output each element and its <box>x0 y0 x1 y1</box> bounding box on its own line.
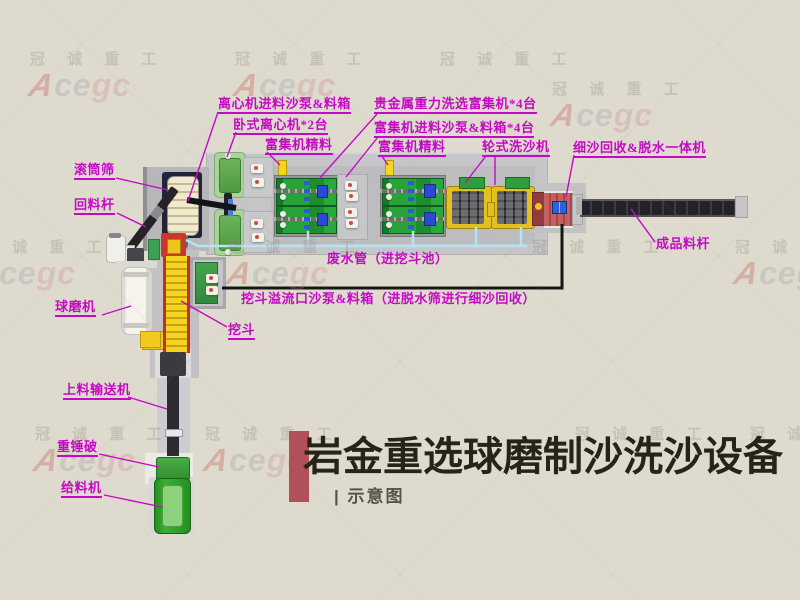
watermark-group: 冠 诚 重 工 Acegc <box>735 240 800 289</box>
bank2-nozzles-bottom <box>408 209 414 231</box>
drum-screen-machine <box>167 176 199 236</box>
watermark-group: 冠 诚 重 工 Acegc <box>235 52 371 101</box>
ball-mill-band-top <box>123 272 149 277</box>
bank2-port <box>386 194 392 200</box>
centrifuge-1-port <box>225 153 231 159</box>
feeder-inner-pan <box>162 485 183 527</box>
recovery-yellow-ring <box>535 203 542 210</box>
centrifuge-1-body <box>219 158 241 193</box>
label-centrifuge-feed-pump: 离心机进料沙泵&料箱 <box>218 97 351 114</box>
label-wheel-washer: 轮式洗沙机 <box>482 140 550 157</box>
pump <box>252 233 264 242</box>
bank2-port <box>386 183 392 189</box>
bank1-port <box>280 183 286 189</box>
small-pump-unit <box>148 239 160 260</box>
label-fine-sand-recovery: 细沙回收&脱水一体机 <box>573 141 706 158</box>
bank2-blue-box-top <box>424 184 436 198</box>
bank1-port <box>280 222 286 228</box>
pump <box>251 164 263 173</box>
product-conveyor-left-joint <box>576 197 582 215</box>
pump <box>206 274 218 283</box>
bank1-blue-box-top <box>317 185 328 198</box>
ball-mill-band-bottom <box>123 323 149 328</box>
pump <box>345 208 357 217</box>
pump <box>346 192 358 201</box>
bank2-port <box>386 222 392 228</box>
label-hammer-crusher: 重锤破 <box>57 440 98 457</box>
label-concentrator-feed-pump: 富集机进料沙泵&料箱*4台 <box>374 121 534 138</box>
product-conveyor-end-cap <box>735 196 748 218</box>
watermark-group: 冠 诚 重 工 Acegc <box>0 240 111 289</box>
label-concentrate-left: 富集机精料 <box>265 138 333 155</box>
washer-1-wheel <box>452 191 484 224</box>
label-gravity-concentrator: 贵金属重力洗选富集机*4台 <box>374 97 537 114</box>
pump <box>346 219 358 228</box>
label-bucket: 挖斗 <box>228 323 255 340</box>
bucket-elevator-boot <box>160 352 186 376</box>
pipe-elbow-blue-2 <box>228 210 233 216</box>
bucket-elevator-chain <box>163 256 190 353</box>
page-title: 岩金重选球磨制沙洗沙设备 <box>303 437 783 477</box>
bank2-blue-box-bottom <box>424 212 436 226</box>
bank2-nozzles-top <box>408 181 414 203</box>
pipe-elbow-blue-1 <box>228 199 233 205</box>
label-return-rod: 回料杆 <box>74 198 115 215</box>
label-feeder: 给料机 <box>61 481 102 498</box>
product-conveyor <box>580 199 737 217</box>
washer-coupler <box>487 202 495 217</box>
watermark-company: 冠 诚 重 工 <box>30 52 166 67</box>
bank2-port <box>386 211 392 217</box>
pump-deck-2 <box>243 211 274 253</box>
label-ball-mill: 球磨机 <box>55 300 96 317</box>
washer-1-motor <box>459 177 485 189</box>
overflow-pump-station <box>195 262 218 304</box>
water-tank <box>106 235 126 263</box>
page-subtitle: | 示意图 <box>334 482 404 507</box>
bank1-port <box>280 194 286 200</box>
pump <box>206 286 218 295</box>
label-horizontal-centrifuge: 卧式离心机*2台 <box>233 118 328 135</box>
recovery-dewater-screen <box>552 201 567 214</box>
watermark-group: 冠 诚 重 工 <box>440 52 576 67</box>
pump <box>345 181 357 190</box>
water-tank-cap <box>109 233 121 238</box>
feed-conveyor-belt <box>167 376 179 456</box>
bank1-blue-box-bottom <box>317 213 328 226</box>
centrifuge-2-body <box>219 215 241 251</box>
label-feeding-conveyor: 上料输送机 <box>63 383 131 400</box>
bank1-nozzles-bottom <box>304 209 310 231</box>
bank1-nozzles-top <box>304 181 310 203</box>
pump <box>252 178 264 187</box>
brand-logo: Acegc <box>30 69 166 101</box>
label-product-rod: 成品料杆 <box>656 237 710 251</box>
pump <box>251 219 263 228</box>
label-concentrate-right: 富集机精料 <box>378 140 446 157</box>
brand-mark-icon: A <box>26 69 58 101</box>
washer-2-wheel <box>497 191 527 224</box>
bucket-elevator-head-cap <box>167 239 181 254</box>
centrifuge-2-port <box>225 249 231 255</box>
bank1-port <box>280 211 286 217</box>
watermark-group: 冠 诚 重 工 Acegc <box>552 82 688 131</box>
label-drum-screen: 滚筒筛 <box>74 163 115 180</box>
feed-conveyor-tick <box>165 429 183 437</box>
label-overflow-pump: 挖斗溢流口沙泵&料箱（进脱水筛进行细沙回收） <box>241 292 536 306</box>
label-waste-pipe: 废水管（进挖斗池） <box>327 252 449 266</box>
watermark-group: 冠 诚 重 工 <box>532 240 668 255</box>
diagram-canvas: 冠 诚 重 工 Acegc 冠 诚 重 工 Acegc 冠 诚 重 工 冠 诚 … <box>0 0 800 600</box>
yellow-bin <box>140 331 161 348</box>
watermark-group: 冠 诚 重 工 Acegc <box>30 52 166 101</box>
washer-2-motor <box>505 177 530 189</box>
